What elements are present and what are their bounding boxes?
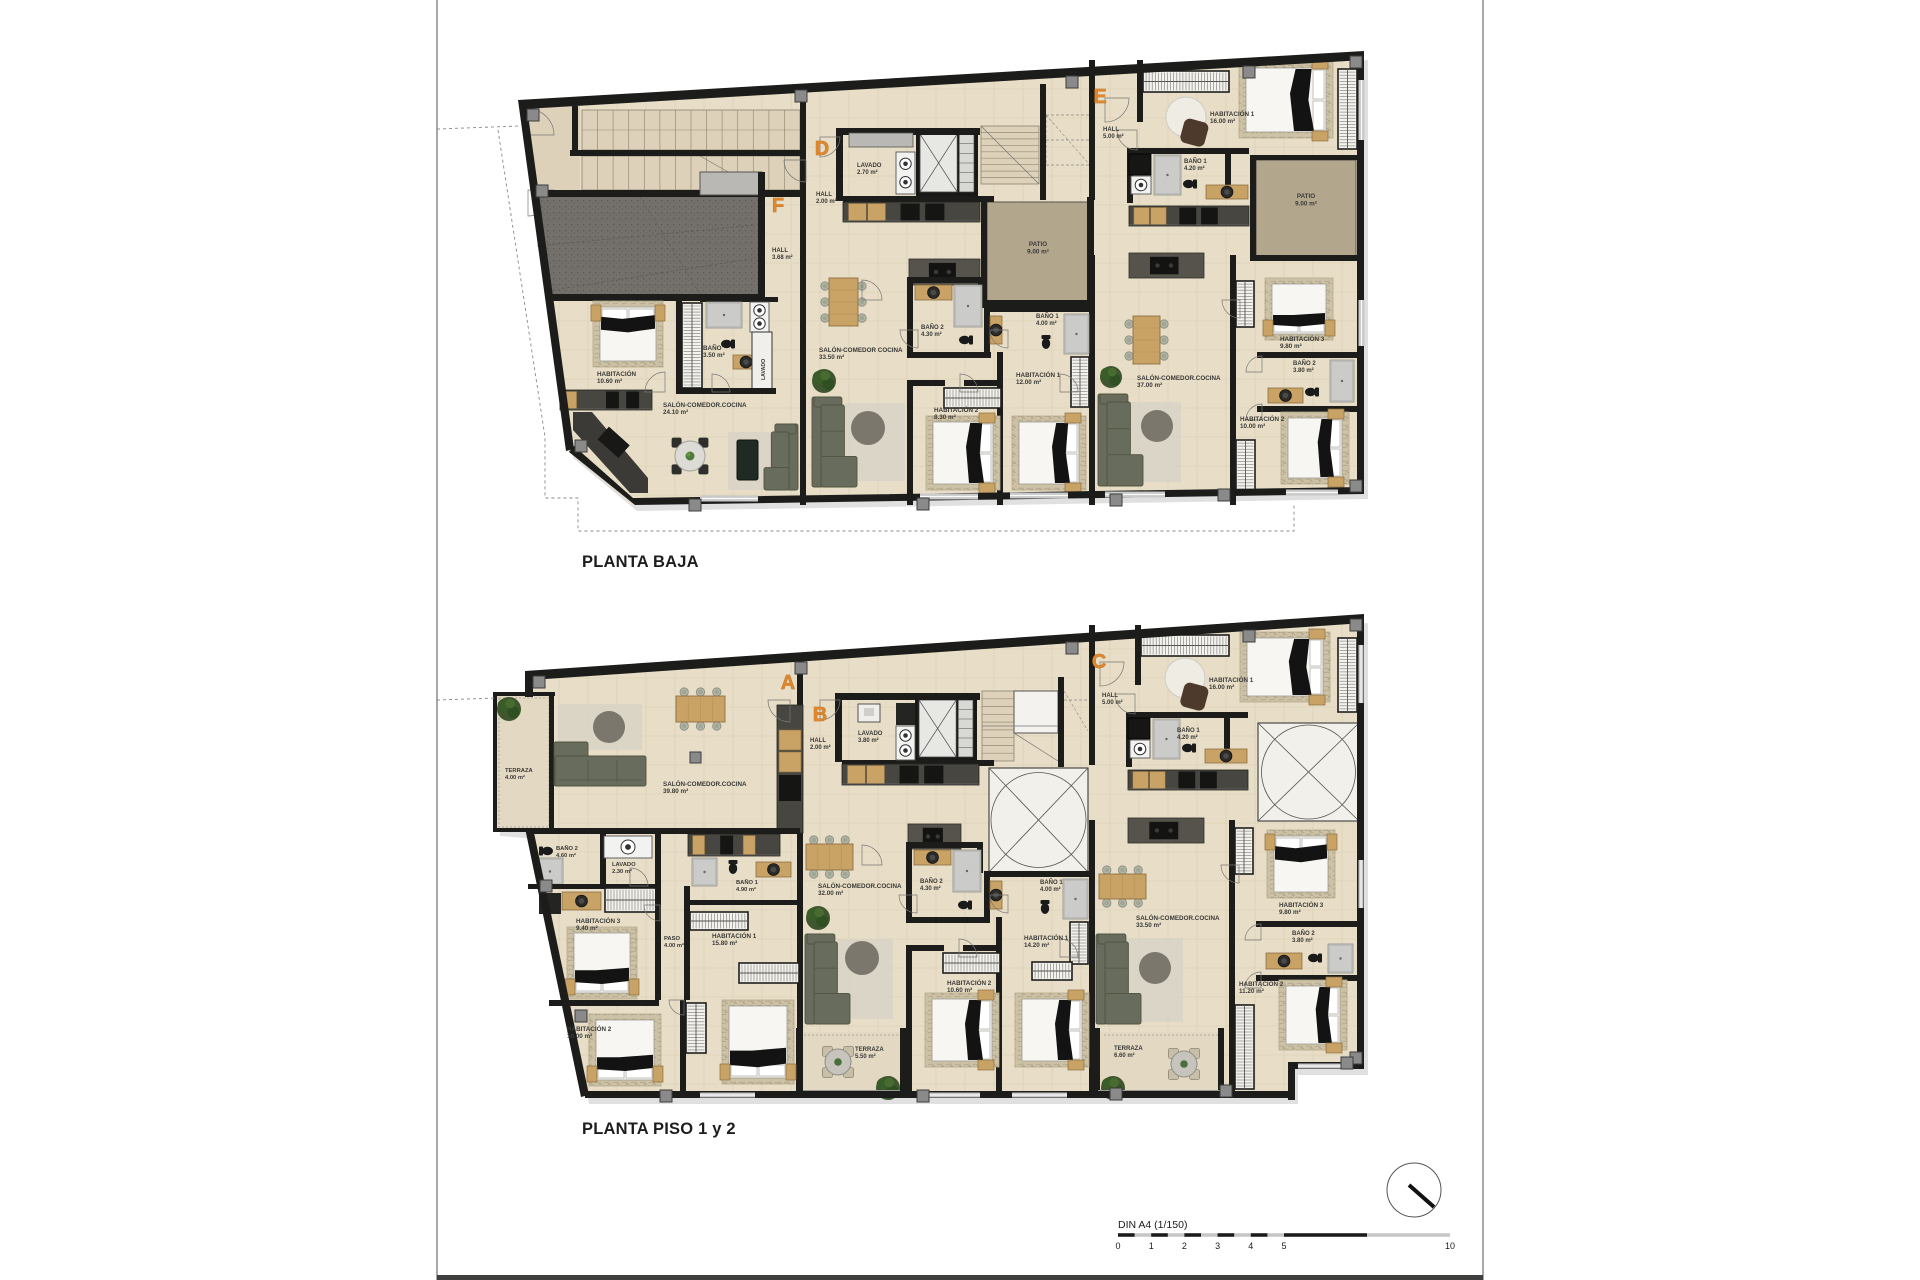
svg-text:HALL: HALL: [772, 248, 788, 254]
svg-text:LAVADO: LAVADO: [857, 163, 882, 169]
svg-text:HABITACIÓN 2: HABITACIÓN 2: [947, 978, 992, 987]
svg-text:32.00 m²: 32.00 m²: [818, 890, 843, 897]
svg-text:5: 5: [1281, 1241, 1286, 1251]
svg-text:9.40 m²: 9.40 m²: [576, 925, 598, 932]
svg-text:1: 1: [1149, 1241, 1154, 1251]
svg-text:TERRAZA: TERRAZA: [855, 1047, 884, 1053]
svg-text:39.80 m²: 39.80 m²: [663, 788, 688, 795]
svg-text:4.20 m²: 4.20 m²: [1177, 734, 1198, 741]
svg-text:4.30 m²: 4.30 m²: [921, 331, 942, 338]
svg-text:TERRAZA: TERRAZA: [505, 768, 534, 774]
svg-text:10.00 m²: 10.00 m²: [1240, 423, 1265, 430]
svg-text:2.00 m²: 2.00 m²: [816, 198, 837, 205]
svg-text:BAÑO: BAÑO: [703, 343, 722, 352]
svg-text:15.80 m²: 15.80 m²: [712, 940, 737, 947]
svg-text:HABITACIÓN 1: HABITACIÓN 1: [1016, 370, 1061, 379]
svg-text:F: F: [772, 195, 784, 217]
svg-text:HABITACIÓN 2: HABITACIÓN 2: [1239, 979, 1284, 988]
svg-text:4.00 m²: 4.00 m²: [664, 942, 684, 949]
svg-text:HABITACIÓN 3: HABITACIÓN 3: [1279, 900, 1324, 909]
svg-text:C: C: [1092, 651, 1106, 673]
svg-text:HABITACIÓN 1: HABITACIÓN 1: [1209, 675, 1254, 684]
svg-text:4.20 m²: 4.20 m²: [1184, 165, 1205, 172]
svg-text:16.00 m²: 16.00 m²: [1209, 684, 1234, 691]
svg-text:PATIO: PATIO: [1029, 241, 1047, 248]
svg-text:5.00 m²: 5.00 m²: [1102, 699, 1123, 706]
svg-text:4: 4: [1248, 1241, 1253, 1251]
svg-text:PLANTA BAJA: PLANTA BAJA: [582, 553, 699, 571]
svg-text:HABITACIÓN 3: HABITACIÓN 3: [1280, 334, 1325, 343]
svg-text:HALL: HALL: [1102, 693, 1118, 699]
svg-text:SALÓN-COMEDOR.COCINA: SALÓN-COMEDOR.COCINA: [663, 779, 747, 788]
svg-text:3.80 m²: 3.80 m²: [1293, 367, 1314, 374]
svg-text:2.30 m²: 2.30 m²: [612, 868, 632, 875]
svg-text:HABITACIÓN 2: HABITACIÓN 2: [567, 1024, 612, 1033]
svg-text:HABITACIÓN 3: HABITACIÓN 3: [576, 916, 621, 925]
svg-text:9.00 m²: 9.00 m²: [1295, 200, 1317, 207]
svg-text:PATIO: PATIO: [1297, 193, 1315, 200]
svg-text:10.60 m²: 10.60 m²: [947, 987, 972, 994]
svg-text:HALL: HALL: [816, 192, 832, 198]
svg-text:4.90 m²: 4.90 m²: [736, 886, 756, 893]
svg-text:16.00 m²: 16.00 m²: [1210, 118, 1235, 125]
svg-text:9.80 m²: 9.80 m²: [1279, 909, 1301, 916]
svg-text:5.00 m²: 5.00 m²: [1103, 133, 1124, 140]
svg-text:2.00 m²: 2.00 m²: [810, 744, 831, 751]
svg-text:HABITACIÓN 2: HABITACIÓN 2: [934, 405, 979, 414]
svg-text:SALÓN-COMEDOR COCINA: SALÓN-COMEDOR COCINA: [819, 345, 903, 354]
svg-text:LAVADO: LAVADO: [761, 359, 767, 380]
svg-text:BAÑO 1: BAÑO 1: [1036, 313, 1059, 320]
svg-text:14.20 m²: 14.20 m²: [1024, 942, 1049, 949]
svg-text:8.30 m²: 8.30 m²: [934, 414, 956, 421]
svg-text:4.00 m²: 4.00 m²: [1036, 320, 1057, 327]
svg-text:3.68 m²: 3.68 m²: [772, 254, 793, 261]
svg-text:3: 3: [1215, 1241, 1220, 1251]
svg-text:HALL: HALL: [810, 738, 826, 744]
svg-text:24.10 m²: 24.10 m²: [663, 409, 688, 416]
svg-text:BAÑO 2: BAÑO 2: [556, 845, 578, 852]
svg-text:HABITACIÓN 1: HABITACIÓN 1: [712, 931, 757, 940]
svg-text:2: 2: [1182, 1241, 1187, 1251]
svg-text:HABITACIÓN: HABITACIÓN: [597, 369, 637, 378]
svg-text:4.30 m²: 4.30 m²: [920, 885, 941, 892]
svg-text:SALÓN-COMEDOR.COCINA: SALÓN-COMEDOR.COCINA: [1136, 913, 1220, 922]
svg-text:BAÑO 1: BAÑO 1: [1040, 879, 1063, 886]
svg-text:HABITACIÓN 1: HABITACIÓN 1: [1210, 109, 1255, 118]
svg-text:4.00 m²: 4.00 m²: [1040, 886, 1061, 893]
svg-text:HABITACIÓN 1: HABITACIÓN 1: [1024, 933, 1069, 942]
svg-text:PASO: PASO: [664, 936, 680, 942]
svg-text:TERRAZA: TERRAZA: [1114, 1046, 1143, 1052]
svg-text:BAÑO 1: BAÑO 1: [1177, 727, 1200, 734]
svg-text:2.70 m²: 2.70 m²: [857, 169, 878, 176]
svg-text:BAÑO 2: BAÑO 2: [1292, 930, 1315, 937]
svg-text:HALL: HALL: [1103, 127, 1119, 133]
svg-text:10.00 m²: 10.00 m²: [567, 1033, 592, 1040]
svg-text:9.00 m²: 9.00 m²: [1027, 248, 1049, 255]
svg-text:PLANTA PISO 1 y 2: PLANTA PISO 1 y 2: [582, 1120, 736, 1138]
svg-text:HABITACIÓN 2: HABITACIÓN 2: [1240, 414, 1285, 423]
svg-text:BAÑO 2: BAÑO 2: [921, 324, 944, 331]
svg-text:10: 10: [1445, 1241, 1455, 1251]
svg-text:BAÑO 2: BAÑO 2: [1293, 360, 1316, 367]
svg-text:E: E: [1093, 86, 1106, 108]
svg-text:3.80 m²: 3.80 m²: [858, 737, 879, 744]
svg-text:33.50 m²: 33.50 m²: [1136, 922, 1161, 929]
svg-text:4.00 m²: 4.00 m²: [505, 774, 525, 781]
svg-text:SALÓN-COMEDOR.COCINA: SALÓN-COMEDOR.COCINA: [818, 881, 902, 890]
svg-text:6.60 m²: 6.60 m²: [1114, 1052, 1135, 1059]
svg-text:37.00 m²: 37.00 m²: [1137, 382, 1162, 389]
svg-text:SALÓN-COMEDOR.COCINA: SALÓN-COMEDOR.COCINA: [663, 400, 747, 409]
svg-text:DIN A4 (1/150): DIN A4 (1/150): [1118, 1219, 1187, 1231]
svg-text:B: B: [813, 704, 827, 726]
svg-text:BAÑO 1: BAÑO 1: [736, 879, 759, 886]
svg-text:0: 0: [1115, 1241, 1120, 1251]
svg-text:BAÑO 1: BAÑO 1: [1184, 158, 1207, 165]
svg-text:33.50 m²: 33.50 m²: [819, 354, 844, 361]
svg-text:12.00 m²: 12.00 m²: [1016, 379, 1041, 386]
svg-text:3.80 m²: 3.80 m²: [1292, 937, 1313, 944]
svg-text:SALÓN-COMEDOR.COCINA: SALÓN-COMEDOR.COCINA: [1137, 373, 1221, 382]
svg-text:9.80 m²: 9.80 m²: [1280, 343, 1302, 350]
svg-text:4.60 m²: 4.60 m²: [556, 852, 576, 859]
svg-text:LAVADO: LAVADO: [858, 731, 883, 737]
svg-text:D: D: [815, 138, 829, 160]
svg-text:3.50 m²: 3.50 m²: [703, 352, 725, 359]
svg-text:A: A: [781, 672, 795, 694]
svg-text:BAÑO 2: BAÑO 2: [920, 878, 943, 885]
svg-text:5.50 m²: 5.50 m²: [855, 1053, 876, 1060]
svg-text:11.20 m²: 11.20 m²: [1239, 988, 1264, 995]
svg-text:10.60 m²: 10.60 m²: [597, 378, 622, 385]
svg-text:LAVADO: LAVADO: [612, 862, 636, 868]
